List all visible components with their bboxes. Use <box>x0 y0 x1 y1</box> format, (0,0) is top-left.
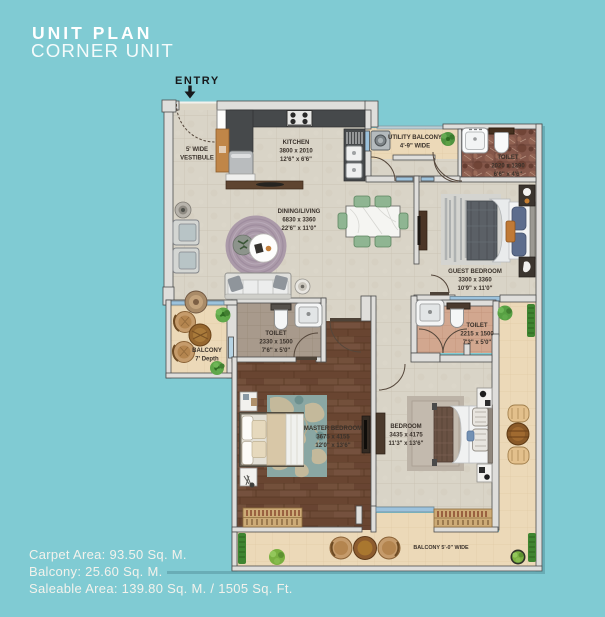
svg-text:3435 x 4175: 3435 x 4175 <box>389 433 423 439</box>
svg-text:2215 x 1500: 2215 x 1500 <box>460 332 494 338</box>
svg-text:Carpet Area: 93.50 Sq. M.: Carpet Area: 93.50 Sq. M. <box>29 547 187 562</box>
svg-text:6'6" x 4'6": 6'6" x 4'6" <box>494 172 523 178</box>
svg-text:GUEST BEDROOM: GUEST BEDROOM <box>448 269 502 275</box>
svg-text:7'6" x 5'0": 7'6" x 5'0" <box>262 348 291 354</box>
svg-text:7' Depth: 7' Depth <box>195 357 219 363</box>
svg-text:BEDROOM: BEDROOM <box>390 424 421 430</box>
svg-text:12'0" x 13'6": 12'0" x 13'6" <box>315 443 350 449</box>
svg-text:22'6" x 11'0": 22'6" x 11'0" <box>282 226 317 232</box>
svg-text:TOILET: TOILET <box>466 323 488 329</box>
svg-text:3300 x 3360: 3300 x 3360 <box>458 278 492 284</box>
svg-text:Saleable Area: 139.80 Sq. M. /: Saleable Area: 139.80 Sq. M. / 1505 Sq. … <box>29 581 293 596</box>
svg-text:VESTIBULE: VESTIBULE <box>180 156 214 162</box>
svg-text:KITCHEN: KITCHEN <box>283 140 310 146</box>
svg-text:BALCONY 5'-0" WIDE: BALCONY 5'-0" WIDE <box>413 545 469 551</box>
svg-text:UTILITY BALCONY: UTILITY BALCONY <box>388 135 442 141</box>
svg-text:11'3" x 13'6": 11'3" x 13'6" <box>389 441 424 447</box>
svg-text:10'9" x 11'0": 10'9" x 11'0" <box>458 286 493 292</box>
svg-text:DINING/LIVING: DINING/LIVING <box>278 209 321 215</box>
svg-text:4'-9" WIDE: 4'-9" WIDE <box>400 144 430 150</box>
svg-text:TOILET: TOILET <box>497 155 519 161</box>
svg-text:2020 x 1390: 2020 x 1390 <box>491 164 525 170</box>
svg-text:6830 x 3360: 6830 x 3360 <box>282 218 316 224</box>
svg-text:2330 x 1500: 2330 x 1500 <box>259 340 293 346</box>
svg-text:Balcony: 25.60 Sq. M.: Balcony: 25.60 Sq. M. <box>29 564 162 579</box>
svg-text:MASTER BEDROOM: MASTER BEDROOM <box>304 426 362 432</box>
svg-text:3800 x 2010: 3800 x 2010 <box>279 149 313 155</box>
svg-text:3675 x 4155: 3675 x 4155 <box>316 435 350 441</box>
svg-text:CORNER UNIT: CORNER UNIT <box>31 40 174 61</box>
svg-text:ENTRY: ENTRY <box>175 75 220 87</box>
svg-text:TOILET: TOILET <box>265 331 287 337</box>
svg-text:BALCONY: BALCONY <box>192 348 222 354</box>
svg-text:12'6" x 6'6": 12'6" x 6'6" <box>280 157 312 163</box>
svg-text:5' WIDE: 5' WIDE <box>186 147 208 153</box>
svg-text:7'3" x 5'0": 7'3" x 5'0" <box>463 340 492 346</box>
